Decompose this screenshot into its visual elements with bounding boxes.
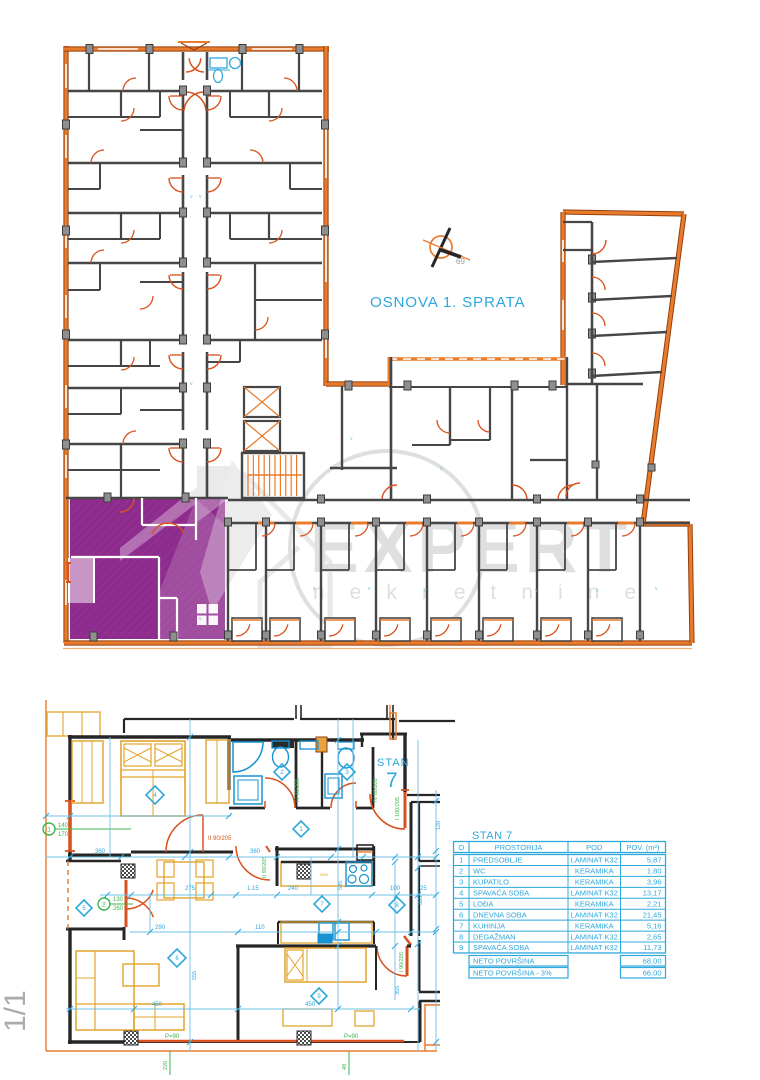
svg-text:100: 100: [390, 886, 401, 892]
svg-text:13,17: 13,17: [643, 889, 662, 898]
svg-text:365: 365: [418, 896, 424, 905]
svg-text:P=90: P=90: [344, 1034, 359, 1040]
svg-text:290: 290: [155, 925, 166, 931]
svg-text:STAN: STAN: [377, 757, 410, 769]
svg-text:555: 555: [192, 971, 198, 980]
svg-text:7: 7: [459, 921, 463, 930]
svg-text:POD: POD: [586, 843, 603, 852]
svg-text:PROSTORIJA: PROSTORIJA: [495, 843, 543, 852]
svg-text:595: 595: [338, 881, 344, 890]
svg-text:IV 80/205: IV 80/205: [373, 778, 379, 802]
svg-text:3: 3: [459, 878, 463, 887]
svg-text:KERAMIKA: KERAMIKA: [575, 878, 614, 887]
svg-text:nekretnine: nekretnine: [313, 581, 661, 604]
svg-text:NETO POVRŠINA: NETO POVRŠINA: [473, 957, 535, 966]
svg-text:PREDSOBLJE: PREDSOBLJE: [473, 856, 523, 865]
svg-text:LAMINAT K32: LAMINAT K32: [571, 943, 618, 952]
svg-text:POV. (m²): POV. (m²): [626, 843, 660, 852]
svg-text:NETO POVRŠINA - 3%: NETO POVRŠINA - 3%: [473, 969, 552, 978]
svg-text:II 90/205: II 90/205: [262, 857, 268, 878]
svg-text:120: 120: [436, 821, 442, 830]
svg-text:220: 220: [163, 1061, 169, 1070]
svg-text:DEGAŽMAN: DEGAŽMAN: [473, 932, 516, 941]
svg-text:6: 6: [459, 910, 463, 919]
svg-text:EXPERT: EXPERT: [310, 507, 632, 588]
svg-text:4: 4: [459, 889, 463, 898]
svg-text:KUPATILO: KUPATILO: [473, 878, 509, 887]
svg-text:3,96: 3,96: [647, 878, 662, 887]
svg-text:SPAVAĆA SOBA: SPAVAĆA SOBA: [473, 943, 529, 952]
svg-text:68,00: 68,00: [643, 957, 662, 966]
svg-text:21,45: 21,45: [643, 910, 662, 919]
svg-text:450: 450: [305, 1002, 316, 1008]
svg-text:OSNOVA 1. SPRATA: OSNOVA 1. SPRATA: [370, 294, 526, 311]
svg-text:140: 140: [58, 823, 69, 829]
svg-text:240: 240: [288, 886, 299, 892]
svg-text:275: 275: [185, 886, 196, 892]
svg-text:KUHINJA: KUHINJA: [473, 921, 505, 930]
svg-text:260: 260: [113, 906, 124, 912]
svg-text:25: 25: [420, 886, 427, 892]
svg-text:9: 9: [459, 943, 463, 952]
svg-text:LAMINAT K32: LAMINAT K32: [571, 932, 618, 941]
svg-text:DNEVNA SOBA: DNEVNA SOBA: [473, 910, 527, 919]
svg-text:LAMINAT K32: LAMINAT K32: [571, 910, 618, 919]
svg-text:1,80: 1,80: [647, 867, 662, 876]
svg-text:5,87: 5,87: [647, 856, 662, 865]
svg-text:355: 355: [395, 986, 401, 995]
svg-text:1/1: 1/1: [0, 990, 32, 1032]
svg-text:KERAMIKA: KERAMIKA: [575, 899, 614, 908]
svg-text:LAMINAT K32: LAMINAT K32: [571, 889, 618, 898]
svg-text:130: 130: [113, 897, 124, 903]
svg-text:IV 80/205: IV 80/205: [295, 778, 301, 802]
svg-text:NZB: NZB: [320, 872, 328, 877]
svg-text:5,16: 5,16: [647, 921, 662, 930]
svg-text:7: 7: [386, 769, 398, 792]
svg-text:STAN 7: STAN 7: [472, 830, 513, 842]
svg-text:170: 170: [58, 832, 69, 838]
svg-text:8: 8: [459, 932, 463, 941]
svg-text:48: 48: [342, 1064, 348, 1070]
svg-text:69: 69: [456, 257, 465, 266]
svg-text:2,65: 2,65: [647, 932, 662, 941]
svg-text:1: 1: [459, 856, 463, 865]
svg-text:KERAMIKA: KERAMIKA: [575, 867, 614, 876]
svg-text:SPAVAĆA SOBA: SPAVAĆA SOBA: [473, 889, 529, 898]
svg-text:WC: WC: [473, 867, 486, 876]
svg-text:66,00: 66,00: [643, 969, 662, 978]
svg-text:I 100/205: I 100/205: [395, 797, 401, 820]
svg-text:II 90/205: II 90/205: [208, 836, 232, 842]
svg-text:2: 2: [459, 867, 463, 876]
svg-text:P=90: P=90: [165, 1034, 180, 1040]
svg-text:1.15: 1.15: [247, 886, 259, 892]
svg-text:2,21: 2,21: [647, 899, 662, 908]
svg-text:LAMINAT K32: LAMINAT K32: [571, 856, 618, 865]
svg-text:I 90/205: I 90/205: [399, 952, 405, 972]
svg-text:450: 450: [152, 1002, 163, 1008]
svg-text:LOĐA: LOĐA: [473, 899, 493, 908]
svg-text:110: 110: [255, 925, 265, 931]
svg-text:5: 5: [459, 899, 463, 908]
svg-text:KERAMIKA: KERAMIKA: [575, 921, 614, 930]
svg-text:360: 360: [250, 849, 261, 855]
svg-text:11,73: 11,73: [643, 943, 661, 952]
svg-text:360: 360: [95, 849, 106, 855]
svg-text:O: O: [458, 843, 464, 852]
